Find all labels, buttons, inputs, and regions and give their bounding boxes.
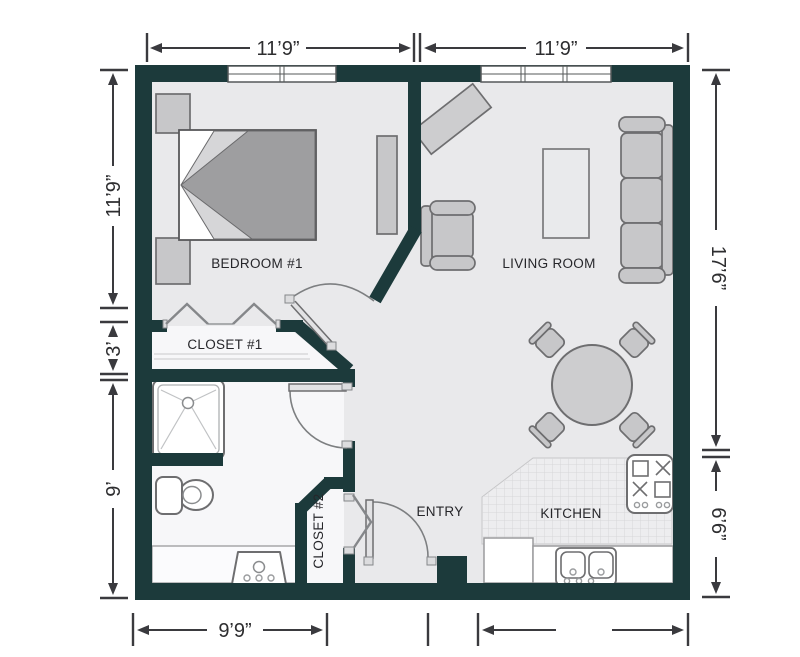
window-icon	[481, 66, 611, 82]
wall-left	[135, 65, 152, 600]
living-room-label: LIVING ROOM	[502, 256, 595, 271]
wall-closet2-top	[324, 477, 352, 489]
shower-icon	[153, 380, 224, 459]
entry-label: ENTRY	[416, 504, 463, 519]
dimension-label: 3’	[103, 341, 125, 357]
bed-icon	[179, 130, 316, 240]
wall-right	[673, 65, 690, 600]
dimension-label: 6’6”	[707, 507, 729, 540]
dimension-label: 9’9”	[218, 620, 251, 642]
wall-bedroom-divider	[408, 82, 421, 234]
wall-closet2-left	[295, 503, 307, 583]
kitchen-sink-icon	[556, 548, 616, 585]
wall-bottom	[135, 583, 690, 600]
kitchen-cabinet	[484, 538, 533, 583]
nightstand-icon	[156, 94, 190, 133]
dimension-label: 11’9”	[535, 38, 578, 60]
wall-shower-stub	[152, 453, 223, 466]
bedroom-label: BEDROOM #1	[211, 256, 303, 271]
vanity-sink-icon	[152, 546, 296, 584]
coffee-table-icon	[543, 149, 589, 238]
nightstand-icon	[156, 238, 190, 284]
window-icon	[228, 66, 336, 82]
dimension-label: 11’9”	[257, 38, 300, 60]
closet1-label: CLOSET #1	[187, 337, 262, 352]
dimension-label: 17’6”	[707, 246, 729, 290]
floor-plan-drawing: BEDROOM #1 LIVING ROOM CLOSET #1 CLOSET …	[0, 0, 800, 657]
closet2-label: CLOSET #2	[311, 493, 326, 568]
armchair-icon	[421, 201, 475, 270]
dimension-label: 11’9”	[103, 175, 125, 218]
wall-entry-block	[437, 556, 467, 585]
dining-table-icon	[552, 345, 632, 425]
kitchen-label: KITCHEN	[540, 506, 601, 521]
floor-plan-page: BEDROOM #1 LIVING ROOM CLOSET #1 CLOSET …	[0, 0, 800, 657]
wall-closet1-bottom	[135, 369, 355, 382]
dimension-label: 9’	[103, 481, 125, 497]
stove-icon	[627, 455, 673, 513]
sofa-icon	[619, 117, 673, 283]
dresser-icon	[377, 136, 397, 234]
